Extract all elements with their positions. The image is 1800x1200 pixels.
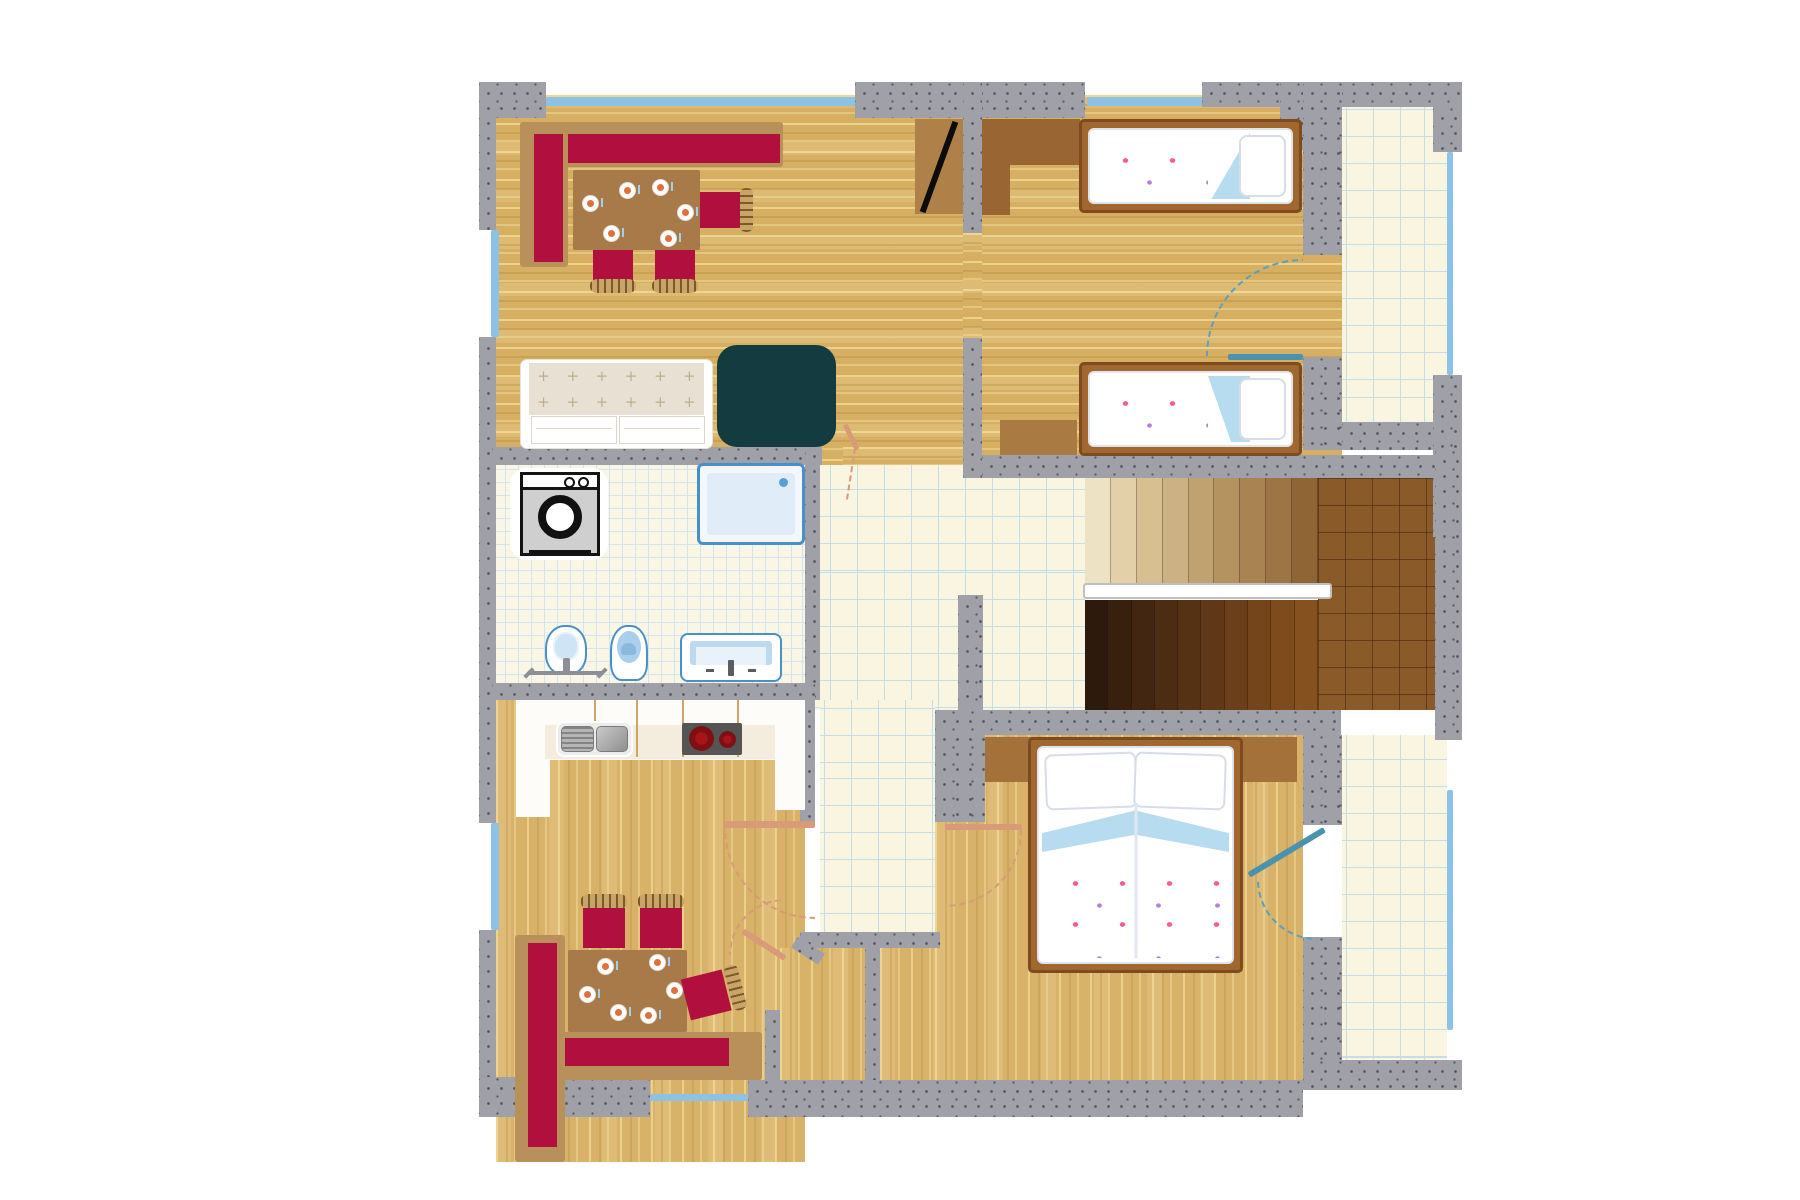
- single-bed-top-mattress: [1088, 128, 1293, 204]
- wall-top-left: [479, 82, 546, 118]
- wall-balcony-top-west-upper: [1303, 82, 1342, 255]
- tuft-mark: +: [537, 397, 550, 407]
- wall-balcony-bottom-south: [1303, 1060, 1462, 1090]
- staircase-landing: [1318, 478, 1435, 710]
- pillow-left: [1044, 751, 1138, 810]
- wall-left-middle: [479, 337, 496, 823]
- shower-tray: [697, 463, 805, 545]
- tv-panel: [915, 119, 963, 214]
- washbasin: [680, 633, 782, 682]
- blanket-fold-left: [1042, 810, 1137, 852]
- dining-table-living: [573, 170, 700, 250]
- single-bed-bottom: [1079, 362, 1302, 456]
- staircase-lower-flight: [1085, 600, 1318, 710]
- bedroom2-door-gap-floor: [963, 233, 982, 338]
- staircase-upper-flight: [1085, 478, 1318, 583]
- wall-balcony-bottom-west-upper: [1303, 735, 1342, 825]
- wardrobe-left-column: [982, 119, 1010, 215]
- place-setting: [667, 983, 682, 998]
- tv-screen-icon: [920, 121, 958, 213]
- tuft-mark: +: [566, 371, 579, 381]
- wall-bedroom2-west-upper: [963, 82, 982, 233]
- place-setting: [583, 196, 598, 211]
- tuft-mark: +: [596, 397, 609, 407]
- place-setting: [580, 987, 595, 1002]
- washing-machine: [520, 472, 600, 556]
- wall-balcony-top-west-lower: [1303, 357, 1342, 450]
- bidet-drain: [563, 658, 570, 674]
- window-living-top: [546, 97, 855, 106]
- wall-bedroom1-north: [935, 710, 1341, 735]
- wall-top-right-corner: [1433, 107, 1462, 152]
- window-living-left: [491, 230, 499, 337]
- stair-step: [1085, 600, 1108, 710]
- stair-step: [1240, 478, 1266, 583]
- wall-entry-tband: [800, 932, 940, 948]
- place-setting: [620, 183, 635, 198]
- burner-small: [719, 731, 736, 748]
- kitchen-chair2: [640, 908, 682, 948]
- place-setting: [678, 205, 693, 220]
- stair-step: [1248, 600, 1271, 710]
- cabinet-divider: [636, 700, 638, 757]
- staircase-handrail: [1083, 583, 1332, 599]
- wall-kitchen-east-lower: [765, 1010, 780, 1080]
- stair-step: [1201, 600, 1224, 710]
- burner-large: [689, 726, 714, 751]
- stair-step: [1225, 600, 1248, 710]
- dining-chair-living-bottom2: [655, 250, 695, 282]
- window-kitchen-bottom: [650, 1094, 748, 1101]
- tuft-mark: +: [683, 371, 696, 381]
- dining-table-kitchen: [568, 950, 687, 1032]
- kitchen-chair1: [583, 908, 625, 948]
- wall-kitchen-bedroom-divider: [865, 948, 880, 1080]
- wall-bottom-middle: [748, 1080, 1303, 1117]
- floor-plan: ++++++++++++: [479, 82, 1462, 1120]
- sink-drainboard: [561, 726, 594, 752]
- kitchen-bench-cushion-bottom: [565, 1038, 729, 1066]
- cooktop: [682, 723, 742, 755]
- wall-hall-west: [958, 595, 983, 710]
- bedroom1-floor-west: [880, 948, 935, 1080]
- wall-bedroom2-west-lower: [963, 338, 982, 478]
- place-setting: [611, 1005, 626, 1020]
- tuft-mark: +: [596, 371, 609, 381]
- window-balcony-bottom-right: [1447, 790, 1453, 1030]
- kitchen-sink: [558, 723, 631, 755]
- duvet-floral: [1043, 856, 1228, 958]
- stair-step: [1295, 600, 1318, 710]
- floor-plan-page: { "meta": { "title": "Apartment floor pl…: [0, 0, 1800, 1200]
- balcony-door-bedroom2: [1228, 354, 1303, 360]
- stair-step: [1137, 478, 1163, 583]
- stair-step: [1085, 478, 1111, 583]
- door-leaf-kitchen-upper: [724, 821, 815, 828]
- place-setting: [653, 180, 668, 195]
- hallway-floor-lower: [820, 700, 935, 932]
- stair-step: [1155, 600, 1178, 710]
- sofa-seat-cushion: [531, 416, 617, 444]
- duvet-floral: [1093, 376, 1208, 442]
- window-balcony-top-right: [1447, 152, 1453, 375]
- place-setting: [661, 231, 676, 246]
- washing-machine-panel: [523, 475, 597, 490]
- corner-bench-cushion-left: [534, 134, 563, 262]
- tuft-mark: +: [625, 397, 638, 407]
- place-setting: [604, 226, 619, 241]
- place-setting: [641, 1008, 656, 1023]
- kitchen-bench-cushion-left: [528, 943, 557, 1147]
- window-bedroom2-top: [1087, 97, 1202, 106]
- dining-chair-living-bottom1: [593, 250, 633, 282]
- wall-stairwell-east: [1435, 450, 1462, 740]
- pillow-right: [1133, 751, 1227, 810]
- toilet: [610, 625, 648, 681]
- wall-balcony-bottom-west-lower: [1303, 937, 1342, 1060]
- corner-bench-cushion-top: [568, 134, 780, 163]
- dining-chair-living-bottom2-back: [652, 279, 698, 293]
- stair-step: [1214, 478, 1240, 583]
- coffee-table: [717, 345, 836, 447]
- wall-bathroom-south: [492, 683, 815, 700]
- stair-step: [1163, 478, 1189, 583]
- stair-step: [1108, 600, 1131, 710]
- place-setting: [650, 955, 665, 970]
- pillow: [1239, 378, 1286, 440]
- balcony-top-floor: [1342, 107, 1447, 422]
- tuft-mark: +: [537, 371, 550, 381]
- stair-step: [1178, 600, 1201, 710]
- wall-bedroom1-west-block: [935, 728, 985, 822]
- sink-basin: [596, 726, 628, 752]
- stair-step: [1189, 478, 1215, 583]
- stair-step: [1266, 478, 1292, 583]
- stair-step: [1111, 478, 1137, 583]
- tuft-mark: +: [625, 371, 638, 381]
- tuft-mark: +: [566, 397, 579, 407]
- blanket-fold-right: [1134, 810, 1229, 852]
- place-setting: [598, 959, 613, 974]
- sofa-seat-cushion: [619, 416, 705, 444]
- tuft-mark: +: [683, 397, 696, 407]
- dining-chair-living-bottom1-back: [590, 279, 636, 293]
- wall-bedroom2-south: [982, 455, 1435, 478]
- duvet-floral: [1093, 133, 1208, 199]
- balcony-bottom-floor: [1342, 735, 1447, 1060]
- double-bed: [1028, 737, 1243, 973]
- stair-step: [1132, 600, 1155, 710]
- sofa-backrest: ++++++++++++: [529, 363, 704, 415]
- kitchen-chair1-back: [581, 894, 627, 909]
- single-bed-bottom-mattress: [1088, 371, 1293, 447]
- sofa: ++++++++++++: [521, 360, 712, 448]
- tuft-mark: +: [654, 397, 667, 407]
- double-bed-mattress: [1037, 746, 1234, 964]
- door-leaf-bedroom1: [945, 824, 1022, 830]
- pillow: [1239, 135, 1286, 197]
- window-kitchen-left: [491, 823, 499, 930]
- dining-chair-living-right-back: [740, 188, 753, 232]
- washing-machine-base: [529, 550, 591, 554]
- hallway-floor: [815, 465, 1085, 710]
- tuft-mark: +: [654, 371, 667, 381]
- stair-step: [1292, 478, 1318, 583]
- kitchen-chair2-back: [638, 894, 684, 909]
- dresser-bedroom2: [1000, 420, 1077, 455]
- washing-machine-door: [538, 495, 582, 539]
- stair-step: [1271, 600, 1294, 710]
- kitchen-counter-right-return: [775, 700, 805, 810]
- single-bed-top: [1079, 119, 1302, 213]
- dining-chair-living-right: [700, 192, 740, 228]
